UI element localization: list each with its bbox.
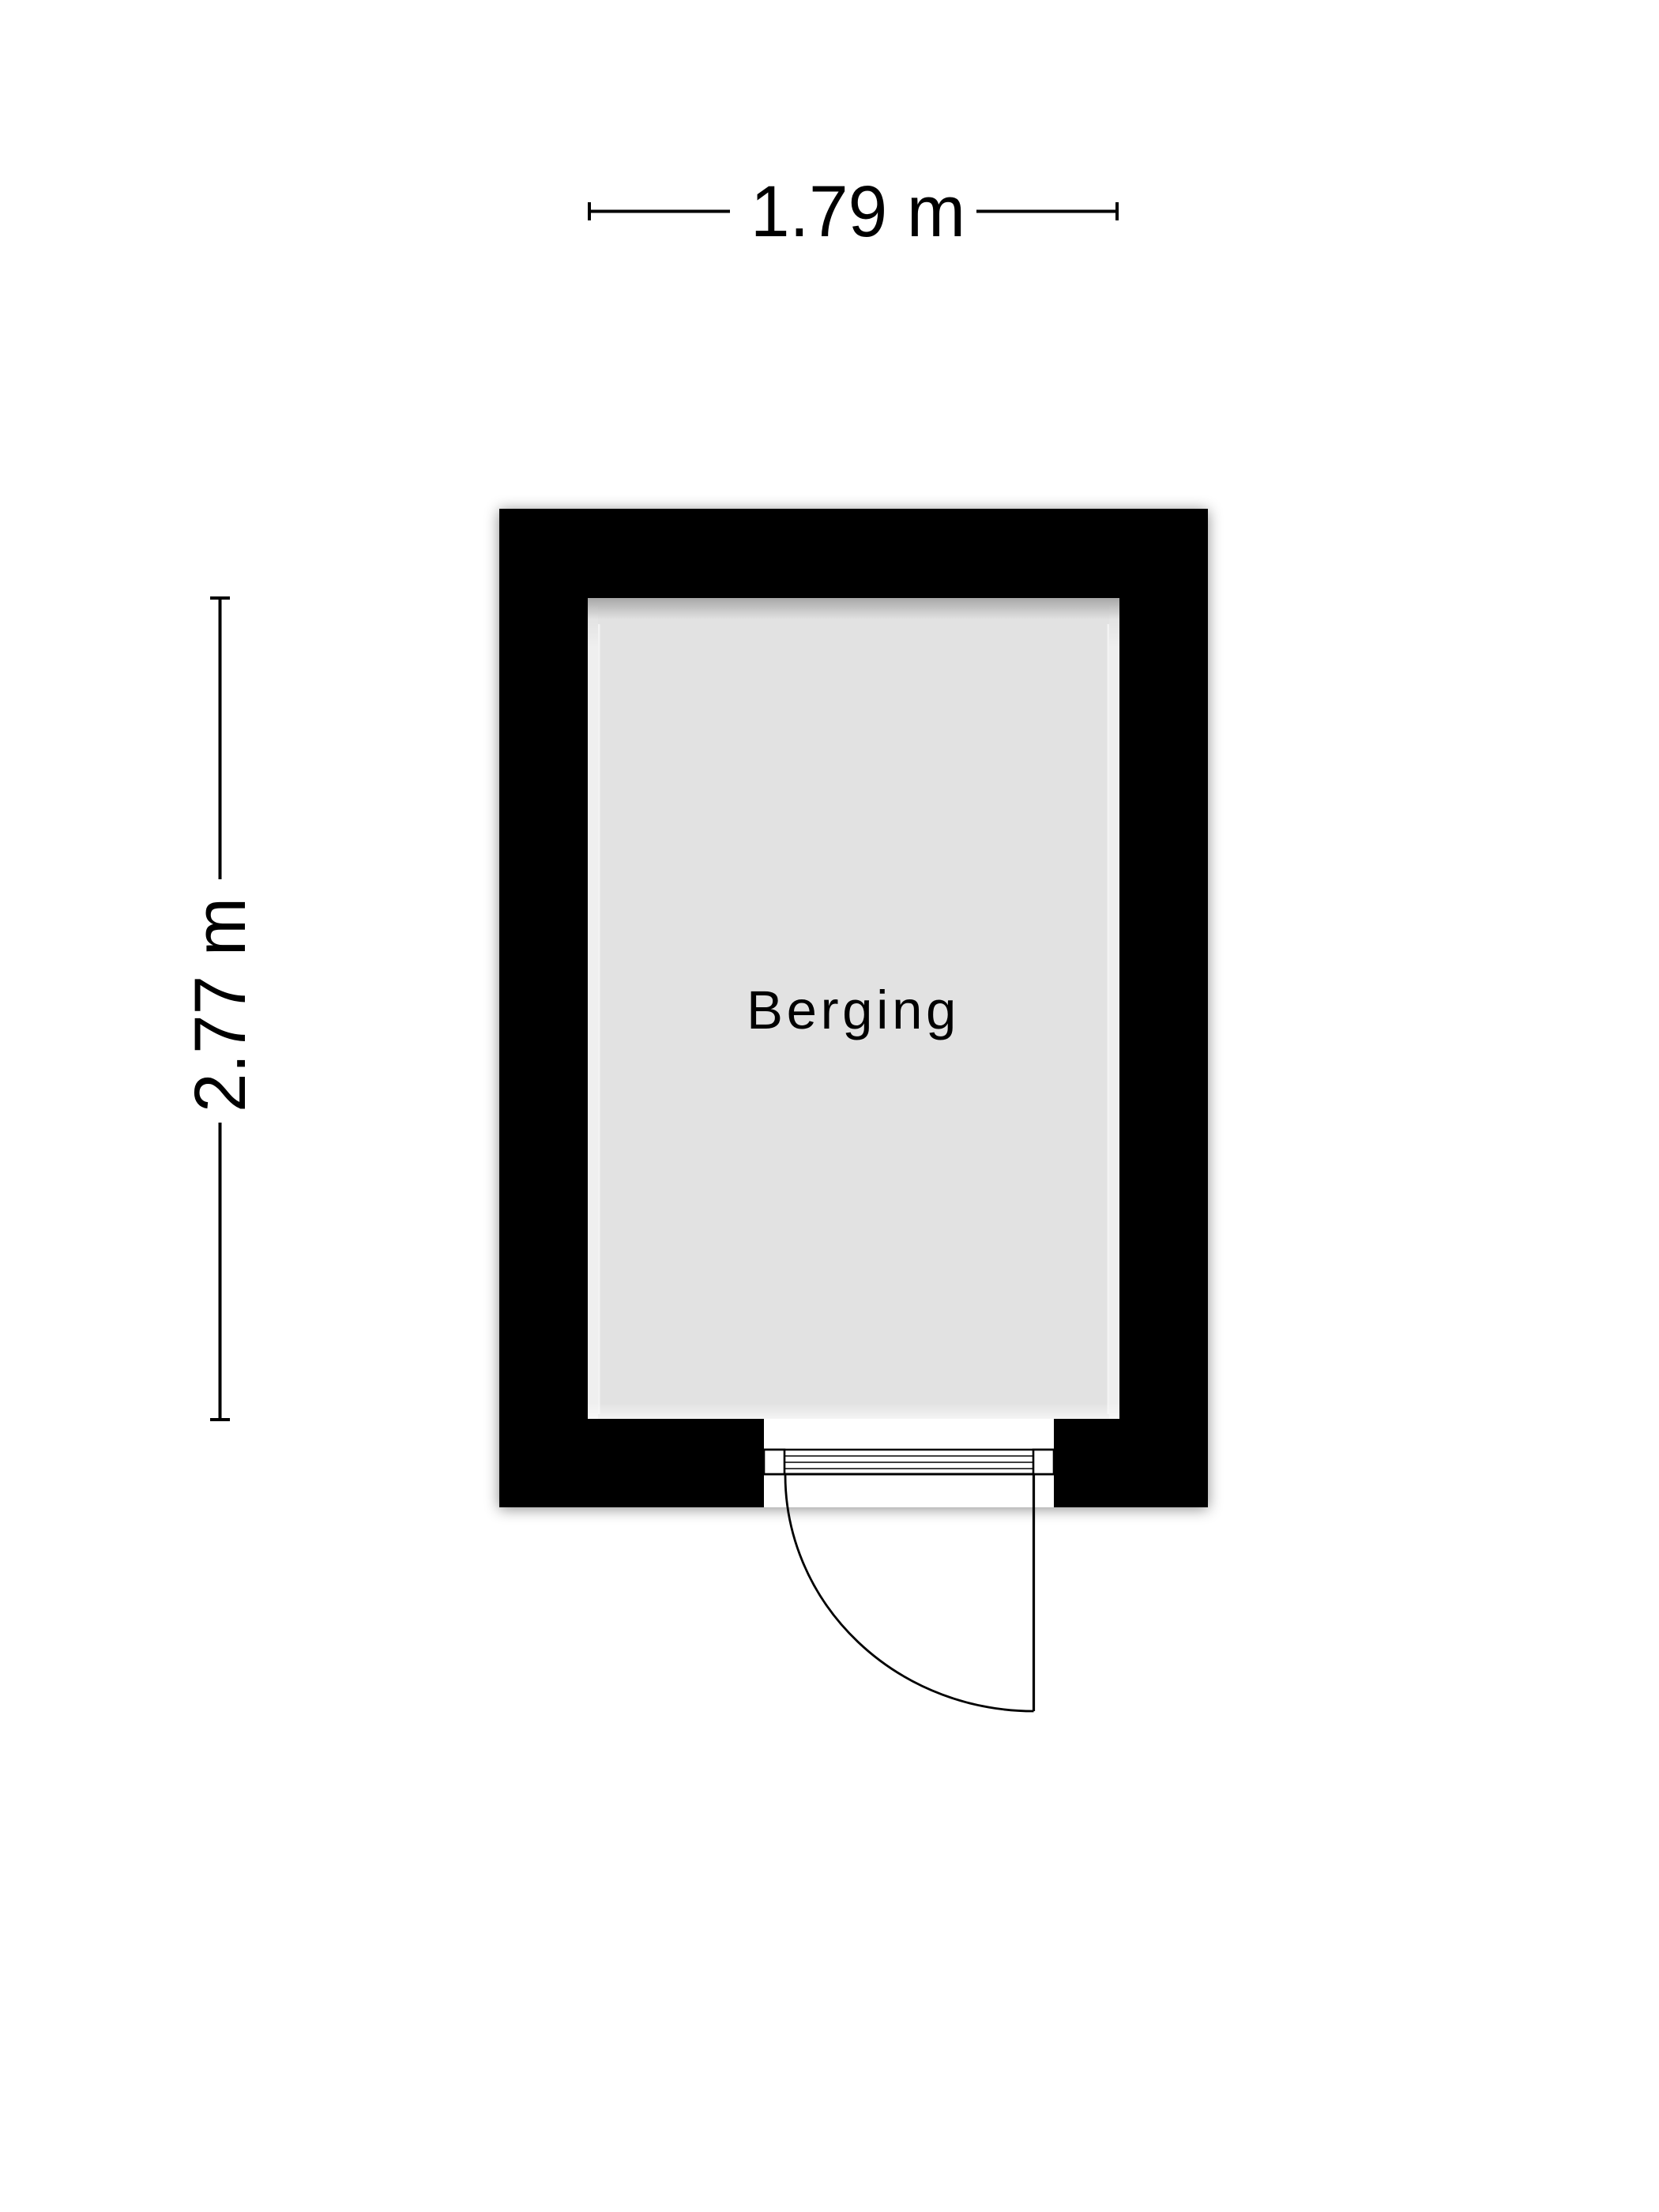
svg-text:2.77 m: 2.77 m <box>180 897 261 1112</box>
svg-text:Berging: Berging <box>747 980 960 1040</box>
svg-text:1.79 m: 1.79 m <box>750 171 965 253</box>
